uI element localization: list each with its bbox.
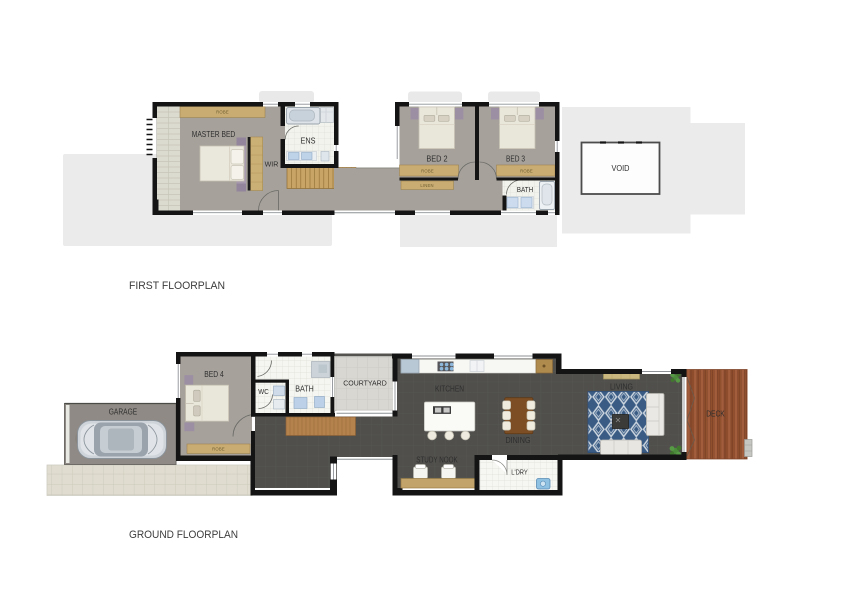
svg-text:MASTER BED: MASTER BED xyxy=(192,130,236,139)
svg-text:COURTYARD: COURTYARD xyxy=(343,378,387,387)
svg-text:WC: WC xyxy=(258,387,269,396)
svg-text:BATH: BATH xyxy=(295,385,314,394)
svg-text:ROBE: ROBE xyxy=(421,169,434,174)
svg-text:ROBE: ROBE xyxy=(520,169,533,174)
svg-text:DINING: DINING xyxy=(506,436,531,445)
svg-text:DECK: DECK xyxy=(706,410,725,419)
svg-text:L'DRY: L'DRY xyxy=(511,468,528,477)
svg-text:VOID: VOID xyxy=(612,164,630,173)
svg-text:BATH: BATH xyxy=(517,185,534,194)
svg-text:LIVING: LIVING xyxy=(610,383,633,392)
svg-text:ROBE: ROBE xyxy=(212,447,225,452)
svg-text:WIR: WIR xyxy=(265,160,279,169)
svg-text:BED 4: BED 4 xyxy=(204,370,224,379)
svg-text:STUDY NOOK: STUDY NOOK xyxy=(416,456,458,465)
svg-text:LINEN: LINEN xyxy=(420,183,433,188)
svg-text:BED 3: BED 3 xyxy=(506,155,525,164)
svg-text:KITCHEN: KITCHEN xyxy=(435,385,464,394)
svg-text:FIRST FLOORPLAN: FIRST FLOORPLAN xyxy=(129,280,225,292)
svg-text:GROUND FLOORPLAN: GROUND FLOORPLAN xyxy=(129,529,238,541)
svg-text:ENS: ENS xyxy=(301,137,316,146)
svg-text:GARAGE: GARAGE xyxy=(109,408,138,417)
svg-text:ROBE: ROBE xyxy=(216,110,229,115)
svg-text:BED 2: BED 2 xyxy=(426,155,447,164)
